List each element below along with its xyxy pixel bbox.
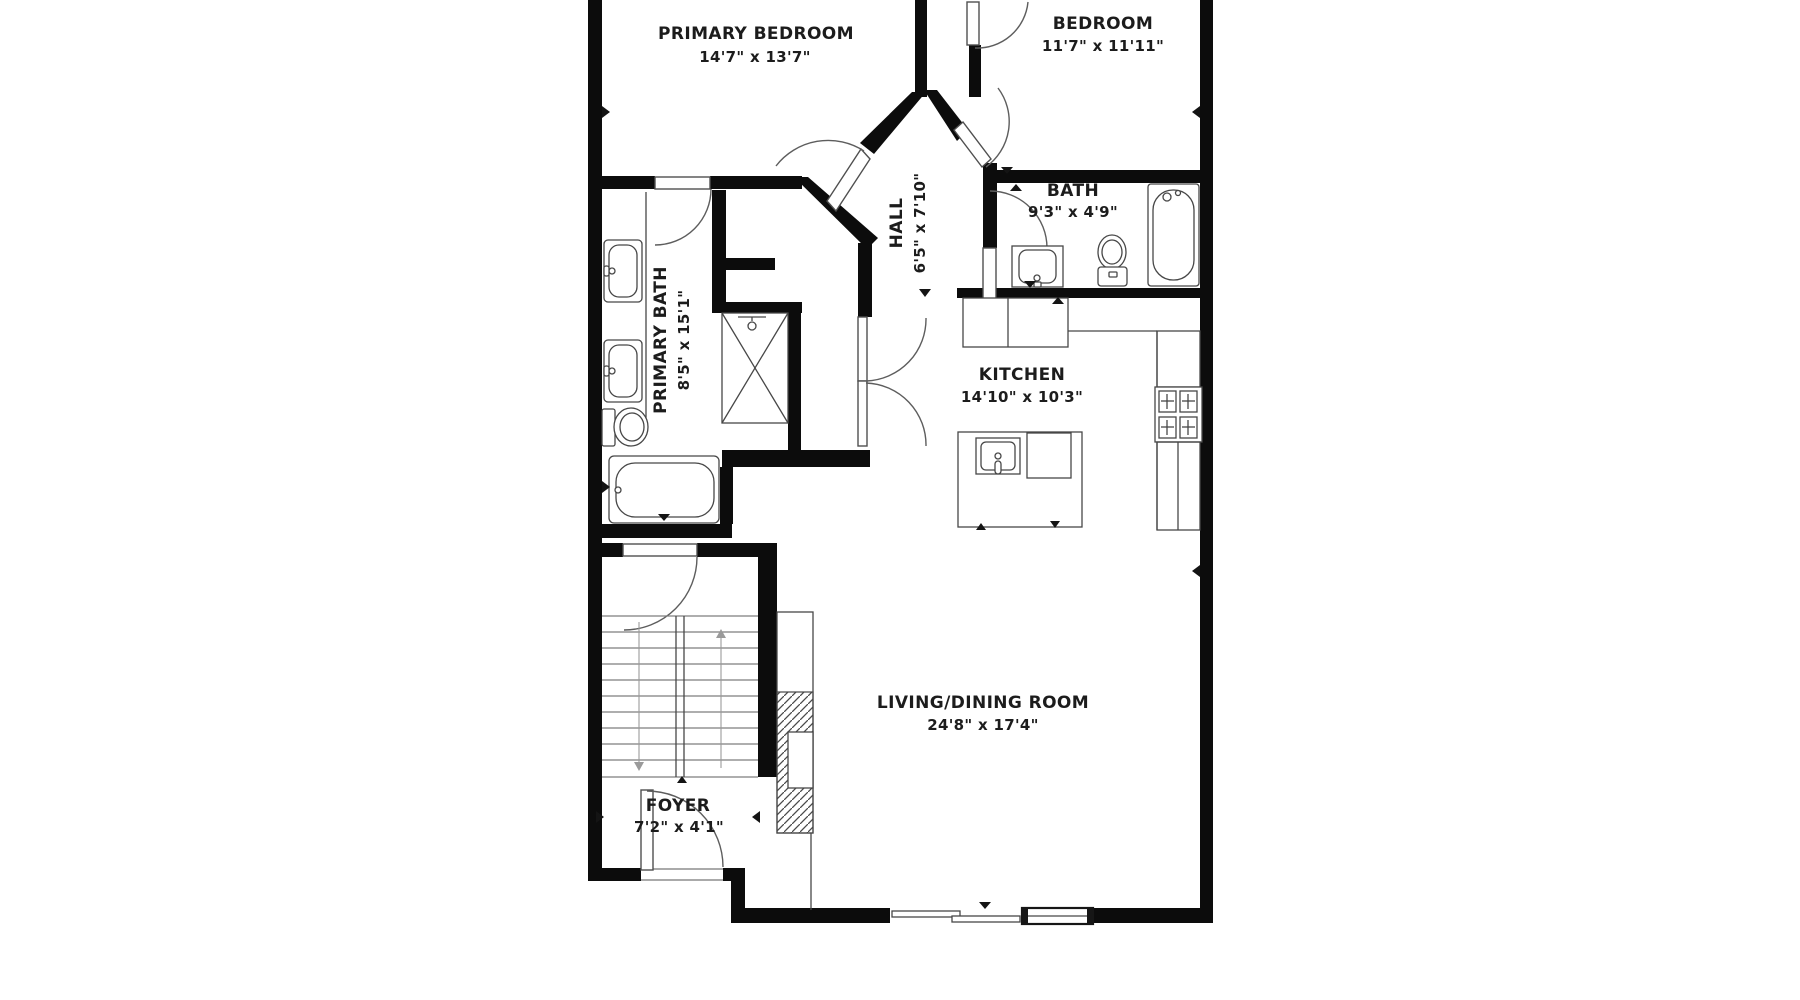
foyer-dims: 7'2" x 4'1" [634, 818, 724, 836]
bedroom-door [954, 88, 1009, 167]
primary-bath-label: PRIMARY BATH [651, 266, 671, 414]
fireplace [777, 612, 813, 910]
hall-label: HALL [887, 198, 907, 249]
living-dining-label: LIVING/DINING ROOM [877, 693, 1089, 713]
stairs [602, 616, 758, 783]
kitchen-dims: 14'10" x 10'3" [961, 388, 1083, 406]
bathtub-icon [609, 456, 719, 523]
kitchen-island [958, 432, 1082, 527]
floor-plan-page: PRIMARY BEDROOM 14'7" x 13'7" BEDROOM 11… [0, 0, 1800, 1000]
primary-bath-fixtures [602, 192, 788, 523]
bath-label: BATH [1047, 181, 1099, 201]
bedroom-label: BEDROOM [1053, 14, 1153, 34]
stair-up-arrow [716, 629, 726, 638]
sink-icon [604, 340, 642, 402]
foyer-label: FOYER [646, 796, 710, 816]
bedroom-closet-door [967, 2, 1028, 48]
primary-bath-door [655, 177, 711, 245]
window [1022, 908, 1093, 924]
living-dining-dims: 24'8" x 17'4" [927, 716, 1038, 734]
bathtub-icon [1148, 184, 1199, 286]
primary-bath-dims: 8'5" x 15'1" [675, 290, 693, 391]
primary-bedroom-dims: 14'7" x 13'7" [699, 48, 810, 66]
stair-down-arrow [634, 762, 644, 771]
landing-door [623, 544, 697, 630]
closet-french-doors [858, 317, 926, 446]
patio-slider-window [892, 908, 1093, 924]
floor-plan: PRIMARY BEDROOM 14'7" x 13'7" BEDROOM 11… [0, 0, 1800, 1000]
kitchen-fixtures [958, 298, 1202, 530]
vanity-sink-icon [1012, 246, 1063, 287]
kitchen-label: KITCHEN [979, 365, 1065, 385]
refrigerator [963, 298, 1068, 347]
primary-bedroom-label: PRIMARY BEDROOM [658, 24, 854, 44]
bath-fixtures [1012, 184, 1199, 287]
sink-icon [604, 240, 642, 302]
toilet-icon [1098, 235, 1127, 286]
bath-dims: 9'3" x 4'9" [1028, 203, 1118, 221]
stove-icon [1155, 387, 1202, 442]
bedroom-dims: 11'7" x 11'11" [1042, 37, 1164, 55]
toilet-icon [602, 408, 648, 446]
counter [1157, 331, 1200, 387]
hall-dims: 6'5" x 7'10" [911, 173, 929, 274]
shower-icon [722, 313, 788, 423]
